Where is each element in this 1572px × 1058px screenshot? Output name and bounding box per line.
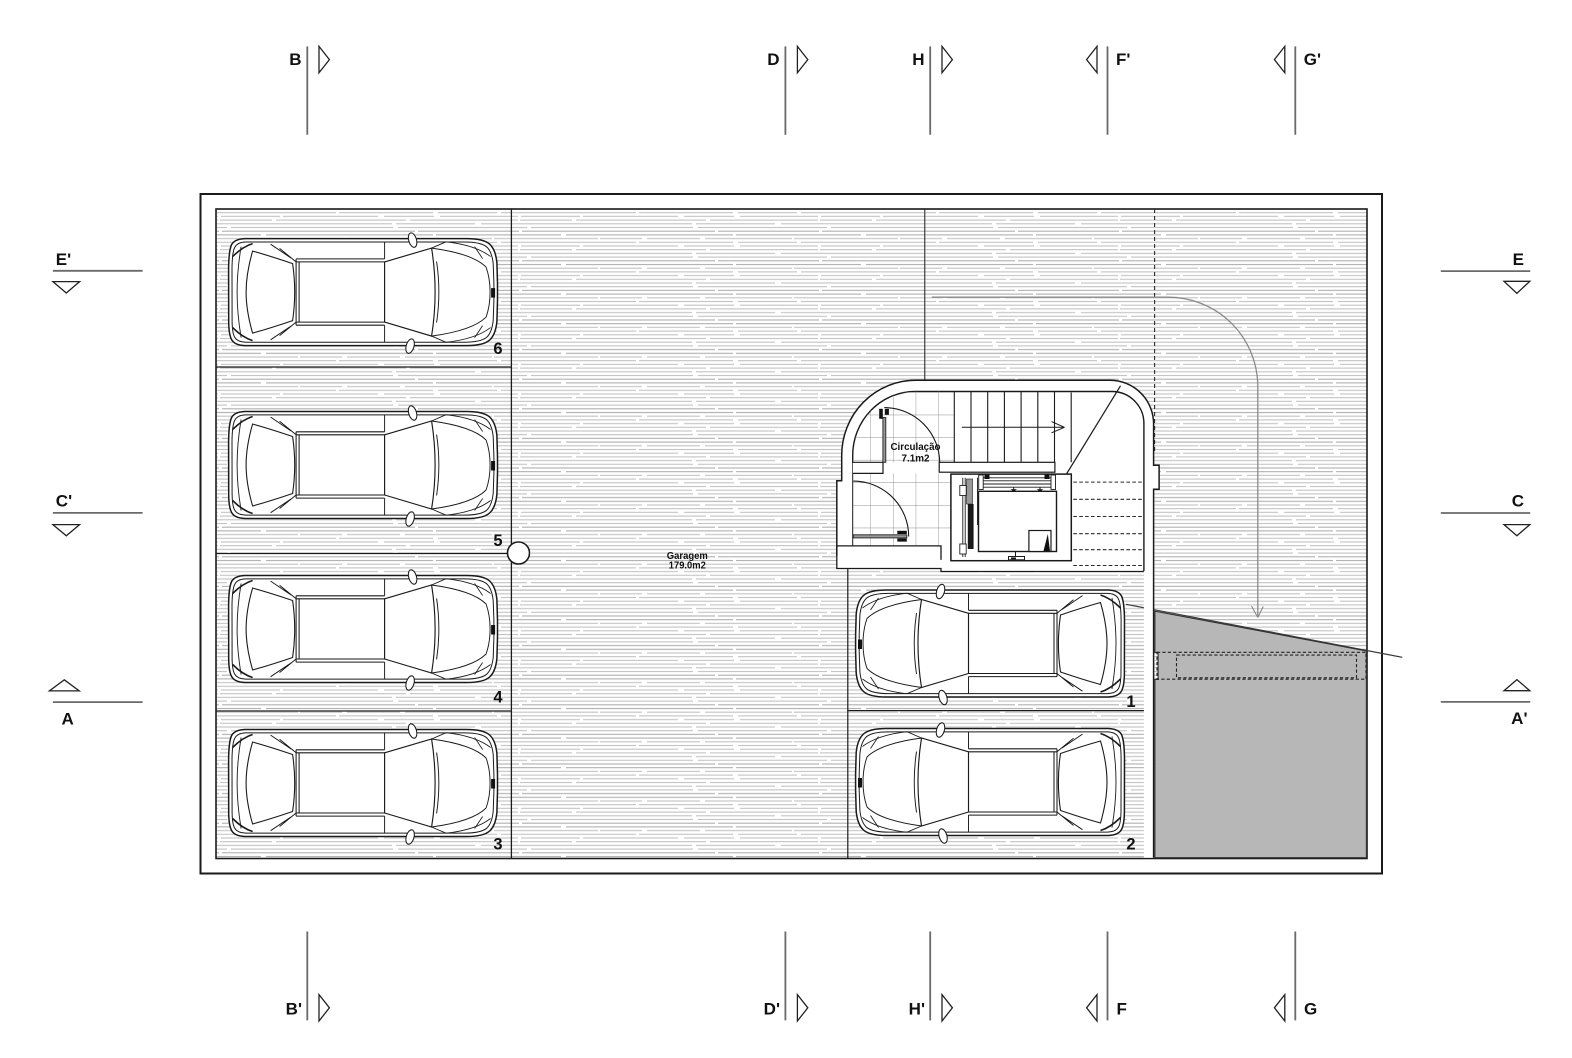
svg-text:5: 5	[493, 532, 502, 550]
svg-text:G': G'	[1304, 50, 1321, 69]
svg-text:6: 6	[493, 340, 502, 358]
svg-text:Circulação: Circulação	[891, 442, 941, 453]
svg-text:1: 1	[1126, 693, 1135, 711]
svg-text:F': F'	[1116, 50, 1130, 69]
svg-text:4: 4	[493, 689, 503, 707]
svg-text:D': D'	[764, 1000, 780, 1019]
svg-text:2: 2	[1126, 836, 1135, 854]
svg-text:G: G	[1304, 1000, 1317, 1019]
svg-text:179.0m2: 179.0m2	[669, 561, 706, 572]
svg-text:A: A	[62, 709, 74, 728]
svg-text:H: H	[912, 50, 924, 69]
svg-text:E: E	[1513, 250, 1524, 269]
svg-text:H': H'	[909, 1000, 925, 1019]
svg-text:3: 3	[493, 836, 502, 854]
svg-text:E': E'	[56, 250, 71, 269]
svg-text:A': A'	[1511, 709, 1527, 728]
svg-text:D: D	[767, 50, 779, 69]
svg-text:B: B	[289, 50, 301, 69]
svg-text:F: F	[1117, 1000, 1127, 1019]
svg-text:B': B'	[286, 1000, 302, 1019]
svg-text:C': C'	[56, 492, 72, 511]
svg-text:7.1m2: 7.1m2	[902, 454, 930, 465]
svg-text:C: C	[1512, 492, 1524, 511]
